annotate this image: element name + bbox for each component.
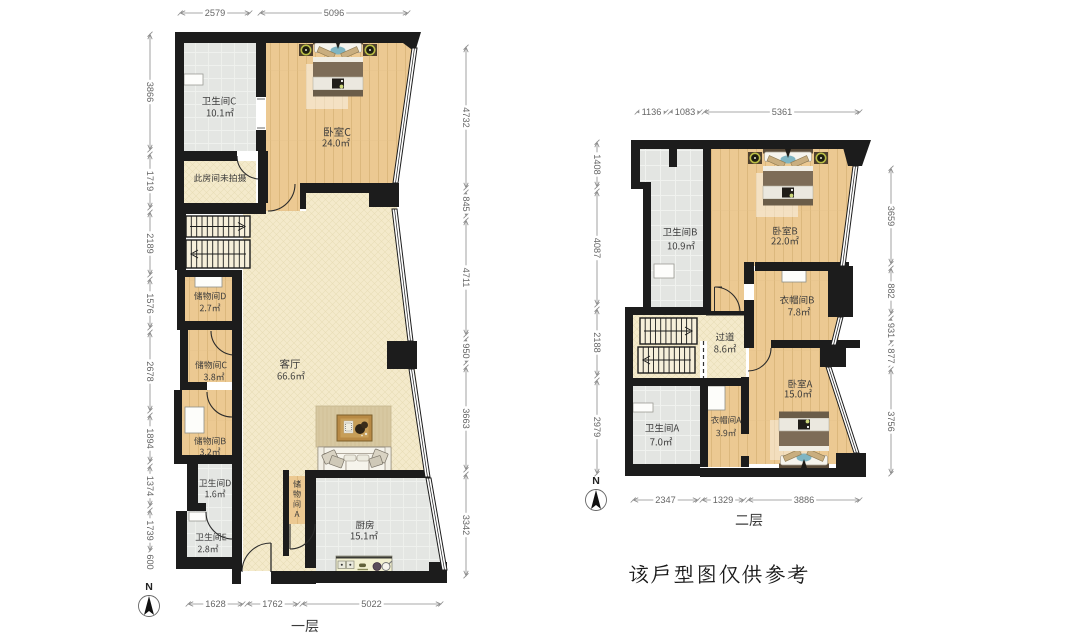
- svg-text:1408: 1408: [592, 154, 602, 174]
- svg-text:3886: 3886: [794, 495, 814, 505]
- svg-text:931: 931: [886, 323, 896, 338]
- svg-text:4711: 4711: [461, 268, 471, 288]
- svg-text:1329: 1329: [713, 495, 733, 505]
- svg-text:3866: 3866: [145, 82, 155, 102]
- svg-text:2189: 2189: [145, 233, 155, 253]
- svg-text:5361: 5361: [772, 107, 792, 117]
- svg-text:1083: 1083: [675, 107, 695, 117]
- svg-text:5022: 5022: [361, 599, 381, 609]
- svg-text:877: 877: [886, 348, 896, 363]
- svg-text:845: 845: [461, 196, 471, 211]
- svg-text:N: N: [145, 581, 153, 593]
- svg-text:600: 600: [145, 554, 155, 569]
- svg-text:2979: 2979: [592, 417, 602, 437]
- svg-text:2579: 2579: [205, 8, 225, 18]
- svg-text:2347: 2347: [655, 495, 675, 505]
- svg-text:1762: 1762: [262, 599, 282, 609]
- svg-text:1739: 1739: [145, 520, 155, 540]
- svg-text:2188: 2188: [592, 332, 602, 352]
- svg-text:1576: 1576: [145, 293, 155, 313]
- svg-text:3659: 3659: [886, 206, 896, 226]
- svg-text:N: N: [592, 475, 600, 487]
- svg-text:5096: 5096: [324, 8, 344, 18]
- svg-text:950: 950: [461, 343, 471, 358]
- svg-text:2678: 2678: [145, 361, 155, 381]
- svg-text:1719: 1719: [145, 171, 155, 191]
- svg-text:4087: 4087: [592, 238, 602, 258]
- svg-text:3663: 3663: [461, 408, 471, 428]
- svg-text:1136: 1136: [642, 107, 662, 117]
- svg-text:4732: 4732: [461, 107, 471, 127]
- svg-text:3342: 3342: [461, 515, 471, 535]
- svg-text:3756: 3756: [886, 411, 896, 431]
- svg-text:1894: 1894: [145, 428, 155, 448]
- svg-text:1628: 1628: [205, 599, 225, 609]
- svg-text:882: 882: [886, 283, 896, 298]
- svg-text:1374: 1374: [145, 476, 155, 496]
